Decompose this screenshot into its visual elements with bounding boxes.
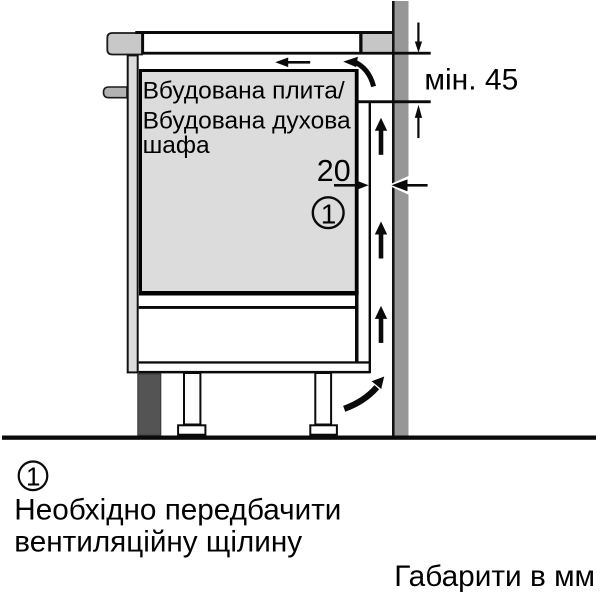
svg-text:1: 1 [26, 462, 40, 492]
svg-text:Необхідно передбачити: Необхідно передбачити [14, 493, 341, 526]
svg-text:шафа: шафа [143, 132, 210, 159]
svg-text:Вбудована плита/: Вбудована плита/ [143, 77, 345, 104]
svg-text:мін. 45: мін. 45 [424, 64, 518, 97]
svg-text:Вбудована духова: Вбудована духова [143, 108, 351, 135]
svg-text:20: 20 [317, 154, 351, 188]
svg-text:1: 1 [321, 198, 337, 229]
svg-text:Габарити в мм: Габарити в мм [394, 560, 595, 593]
svg-text:вентиляційну щілину: вентиляційну щілину [14, 526, 302, 559]
